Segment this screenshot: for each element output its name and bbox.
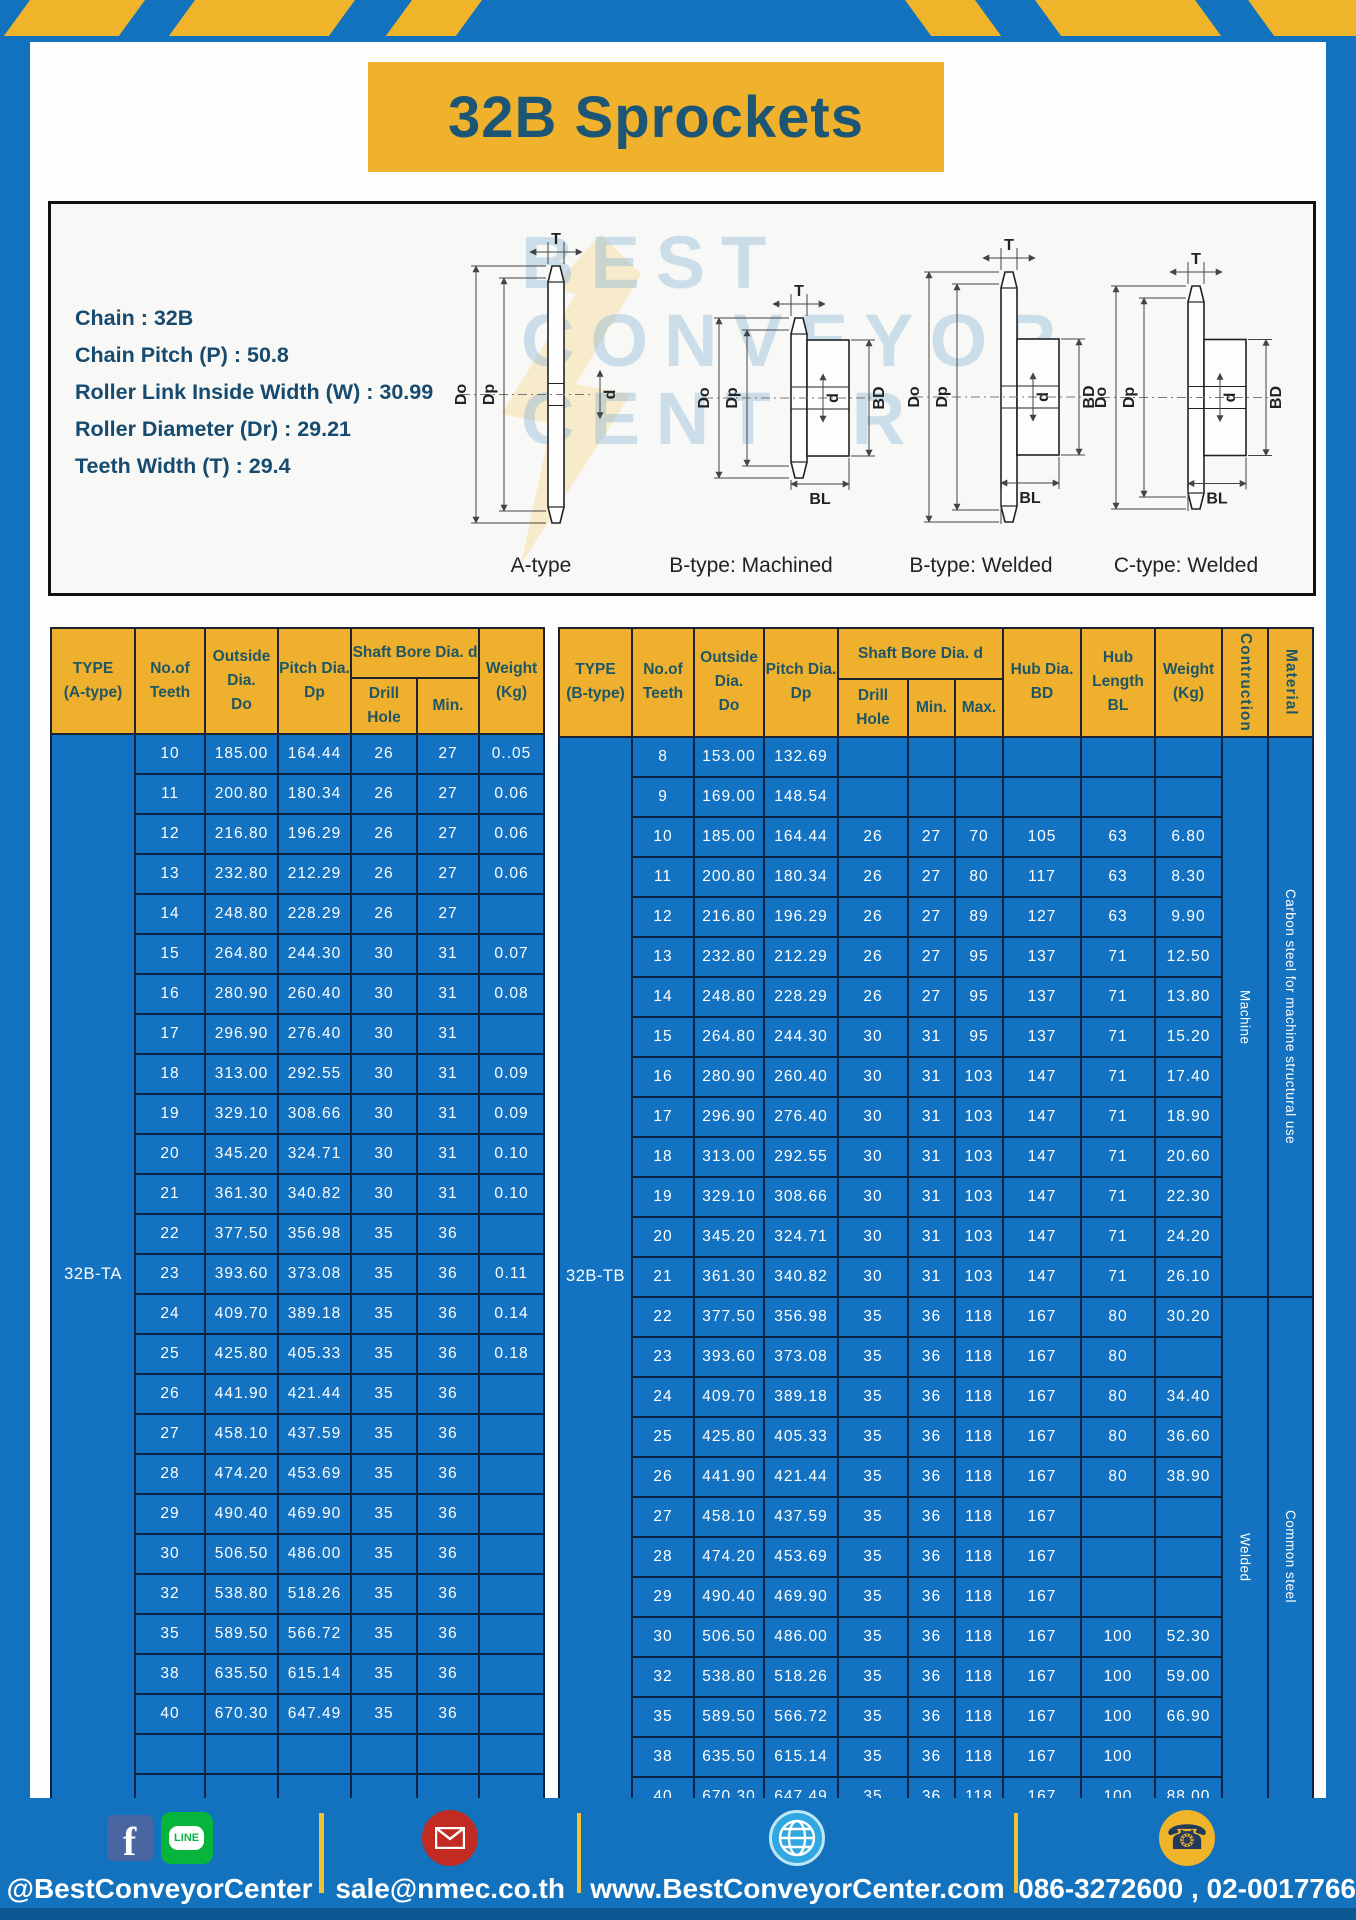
table-cell: 18 [632,1137,694,1177]
table-cell: 216.80 [205,814,278,854]
table-cell: 35 [838,1657,908,1697]
table-cell: 71 [1081,1177,1155,1217]
table-cell: 137 [1003,977,1081,1017]
table-cell: 30 [351,934,417,974]
footer-social-group: f LINE @BestConveyorCenter [0,1798,319,1908]
table-cell: 453.69 [764,1537,838,1577]
table-cell: 15 [632,1017,694,1057]
table-cell: 167 [1003,1297,1081,1337]
table-cell: 185.00 [694,817,764,857]
table-cell: 31 [908,1057,955,1097]
table-cell: 26.10 [1155,1257,1222,1297]
table-cell: 35 [351,1374,417,1414]
table-cell: 340.82 [278,1174,351,1214]
dimension-label: Do [906,386,923,408]
table-cell: 31 [908,1017,955,1057]
table-cell: 167 [1003,1577,1081,1617]
table-cell: 52.30 [1155,1617,1222,1657]
table-cell: 405.33 [278,1334,351,1374]
table-cell: 30 [838,1217,908,1257]
table-cell: 30 [351,1054,417,1094]
table-cell: 103 [955,1057,1003,1097]
table-cell: 24 [632,1377,694,1417]
table-cell: 244.30 [764,1017,838,1057]
table-cell: 458.10 [205,1414,278,1454]
table-cell: 26 [838,857,908,897]
table-cell: 118 [955,1577,1003,1617]
table-cell: 80 [1081,1337,1155,1377]
table-cell: 147 [1003,1097,1081,1137]
dimension-label: d [825,393,842,403]
table-cell: 36 [417,1414,479,1454]
table-cell: 19 [632,1177,694,1217]
table-cell: 31 [908,1177,955,1217]
table-cell: 35 [351,1454,417,1494]
table-cell: 421.44 [764,1457,838,1497]
table-cell: 264.80 [205,934,278,974]
stripe-decoration [1248,0,1356,36]
table-cell: 31 [908,1257,955,1297]
dimension-label: Do [696,387,713,409]
table-cell: 35 [351,1334,417,1374]
col-header-min: Min. [908,679,955,737]
table-cell: 232.80 [205,854,278,894]
sprocket-drawing: DoDpTdBDBL [696,283,888,508]
table-cell: 13 [632,937,694,977]
table-cell: 486.00 [278,1534,351,1574]
table-cell: 26 [838,817,908,857]
table-cell: 26 [351,894,417,934]
table-cell: 118 [955,1337,1003,1377]
table-cell: 137 [1003,1017,1081,1057]
spec-line: Chain : 32B [75,300,433,337]
table-cell: 0..05 [479,734,544,774]
table-cell: 0.10 [479,1174,544,1214]
table-cell [479,1214,544,1254]
table-cell: 118 [955,1697,1003,1737]
table-cell [479,1534,544,1574]
footer-social-handle[interactable]: @BestConveyorCenter [7,1873,313,1905]
col-header-shaft-bore: Shaft Bore Dia. d [351,628,479,678]
table-cell: 35 [351,1694,417,1734]
col-header-construction: Contruction [1222,628,1268,737]
table-cell: 100 [1081,1697,1155,1737]
table-cell: 324.71 [278,1134,351,1174]
table-cell [1155,1577,1222,1617]
table-cell: 36 [908,1497,955,1537]
table-cell: 35 [838,1457,908,1497]
dimension-label: d [1035,392,1052,402]
facebook-icon[interactable]: f [107,1815,153,1861]
table-cell: 35 [838,1417,908,1457]
table-cell: 118 [955,1377,1003,1417]
table-cell: 103 [955,1137,1003,1177]
table-cell [479,1454,544,1494]
table-cell: 490.40 [694,1577,764,1617]
table-cell: 30.20 [1155,1297,1222,1337]
table-cell: 10 [135,734,205,774]
col-header-teeth: No.of Teeth [632,628,694,737]
table-cell: 20 [632,1217,694,1257]
table-cell: 31 [417,1174,479,1214]
table-cell: 103 [955,1177,1003,1217]
table-cell: 35 [838,1737,908,1777]
table-cell: 167 [1003,1657,1081,1697]
table-cell: 100 [1081,1737,1155,1777]
table-cell: 308.66 [764,1177,838,1217]
line-icon[interactable]: LINE [161,1812,213,1864]
table-cell: 324.71 [764,1217,838,1257]
table-cell: 80 [955,857,1003,897]
table-cell: 441.90 [205,1374,278,1414]
table-cell [479,1374,544,1414]
table-cell: 28 [632,1537,694,1577]
table-cell: 27 [417,734,479,774]
table-cell: 292.55 [278,1054,351,1094]
table-cell: 29 [135,1494,205,1534]
table-cell: 36 [908,1737,955,1777]
table-cell: 36 [417,1494,479,1534]
table-cell: 36 [417,1294,479,1334]
table-cell: 36 [908,1657,955,1697]
table-cell: 12 [632,897,694,937]
col-header-max: Max. [955,679,1003,737]
table-cell: 566.72 [278,1614,351,1654]
table-cell: 506.50 [694,1617,764,1657]
table-cell: 437.59 [764,1497,838,1537]
table-cell: 280.90 [694,1057,764,1097]
dimension-label: Do [453,384,470,406]
table-cell: 248.80 [205,894,278,934]
table-cell: 0.09 [479,1094,544,1134]
table-cell: 35 [838,1537,908,1577]
table-cell: 26 [838,977,908,1017]
table-cell: 103 [955,1097,1003,1137]
table-cell: 469.90 [764,1577,838,1617]
table-cell: 147 [1003,1137,1081,1177]
globe-icon[interactable] [769,1810,825,1866]
table-cell: 29 [632,1577,694,1617]
table-cell: 518.26 [764,1657,838,1697]
chain-specs: Chain : 32B Chain Pitch (P) : 50.8 Rolle… [75,300,433,485]
col-header-drill-hole: Drill Hole [838,679,908,737]
table-cell: 340.82 [764,1257,838,1297]
footer-email[interactable]: sale@nmec.co.th [335,1873,565,1905]
table-cell: 105 [1003,817,1081,857]
table-cell [1155,1737,1222,1777]
table-cell: 0.06 [479,774,544,814]
table-cell: 30 [838,1097,908,1137]
footer: f LINE @BestConveyorCenter sale@nmec.co.… [0,1798,1356,1908]
table-cell: 35 [632,1697,694,1737]
table-cell: 71 [1081,1257,1155,1297]
table-cell: 538.80 [694,1657,764,1697]
table-cell: 24 [135,1294,205,1334]
table-cell: 27 [908,897,955,937]
table-cell: 212.29 [764,937,838,977]
table-cell: 296.90 [205,1014,278,1054]
table-cell: 35 [838,1697,908,1737]
table-cell: 36 [908,1337,955,1377]
table-cell: 118 [955,1417,1003,1457]
table-cell [479,1414,544,1454]
table-cell: 35 [838,1297,908,1337]
table-cell: 20 [135,1134,205,1174]
table-cell: 0.08 [479,974,544,1014]
table-cell [955,777,1003,817]
table-cell: 118 [955,1737,1003,1777]
table-cell: 35 [838,1337,908,1377]
dimension-label: d [602,390,619,400]
span-cell: Carbon steel for machine structural use [1268,737,1313,1297]
variant-label-a-type: A-type [511,554,572,578]
table-cell: 31 [417,1054,479,1094]
col-header-outside-dia: Outside Dia. Do [694,628,764,737]
table-cell: 26 [632,1457,694,1497]
table-cell: 20.60 [1155,1137,1222,1177]
sprocket-drawing: DoDpTd [453,231,619,523]
table-cell: 71 [1081,1017,1155,1057]
dimension-label: BL [1019,490,1041,507]
table-cell: 36 [908,1457,955,1497]
bottom-border [0,1908,1356,1920]
table-cell: 71 [1081,1057,1155,1097]
table-cell: 14 [135,894,205,934]
span-cell: Welded [1222,1297,1268,1817]
table-cell: 26 [351,734,417,774]
type-cell: 32B-TB [559,737,632,1817]
table-cell: 63 [1081,817,1155,857]
table-cell: 635.50 [694,1737,764,1777]
table-cell: 36 [417,1694,479,1734]
table-cell: 27 [135,1414,205,1454]
variant-label-c-welded: C-type: Welded [1114,554,1258,578]
table-cell: 31 [417,1134,479,1174]
table-cell: 393.60 [205,1254,278,1294]
stripe-decoration [169,0,355,36]
table-cell: 0.06 [479,814,544,854]
table-cell: 80 [1081,1457,1155,1497]
phone-icon[interactable]: ☎ [1159,1810,1215,1866]
table-cell [1081,737,1155,777]
table-cell: 118 [955,1657,1003,1697]
col-header-material: Material [1268,628,1313,737]
table-cell: 30 [838,1137,908,1177]
table-cell: 27 [908,817,955,857]
table-cell [135,1734,205,1774]
table-cell [479,1494,544,1534]
table-cell: 71 [1081,937,1155,977]
dimension-label: BL [1206,491,1228,508]
table-cell: 36 [417,1334,479,1374]
dimension-label: T [794,283,804,300]
table-cell: 30 [351,974,417,1014]
table-cell: 393.60 [694,1337,764,1377]
page-title: 32B Sprockets [448,84,864,151]
table-cell [479,1654,544,1694]
spec-line: Chain Pitch (P) : 50.8 [75,337,433,374]
table-cell: 147 [1003,1217,1081,1257]
table-cell: 212.29 [278,854,351,894]
footer-website[interactable]: www.BestConveyorCenter.com [590,1873,1004,1905]
table-cell: 26 [351,854,417,894]
table-cell [1003,737,1081,777]
dimension-label: T [1191,251,1201,268]
table-cell: 36 [417,1614,479,1654]
table-cell: 389.18 [278,1294,351,1334]
table-cell: 167 [1003,1537,1081,1577]
table-cell: 518.26 [278,1574,351,1614]
table-cell: 8.30 [1155,857,1222,897]
table-cell: 9 [632,777,694,817]
table-cell: 458.10 [694,1497,764,1537]
table-cell: 36 [908,1537,955,1577]
col-header-pitch-dia: Pitch Dia. Dp [764,628,838,737]
table-cell: 615.14 [278,1654,351,1694]
table-cell: 437.59 [278,1414,351,1454]
table-cell: 63 [1081,857,1155,897]
table-cell: 31 [417,934,479,974]
sprocket-drawing: DoDpTdBDBL [1093,251,1285,511]
dimension-label: T [551,231,561,248]
table-cell: 329.10 [694,1177,764,1217]
table-cell: 71 [1081,977,1155,1017]
dimension-label: Dp [1121,387,1138,409]
footer-phone-numbers[interactable]: 086-3272600 , 02-0017766 [1018,1873,1356,1905]
footer-website-group: www.BestConveyorCenter.com [581,1798,1014,1908]
table-cell: 425.80 [694,1417,764,1457]
variant-label-b-machined: B-type: Machined [669,554,832,578]
table-cell [838,777,908,817]
spec-line: Teeth Width (T) : 29.4 [75,448,433,485]
table-cell: 167 [1003,1417,1081,1457]
table-cell: 474.20 [694,1537,764,1577]
dimension-label: T [1004,237,1014,254]
col-header-min: Min. [417,678,479,734]
footer-email-group: sale@nmec.co.th [324,1798,577,1908]
table-cell: 27 [417,814,479,854]
table-cell: 27 [908,937,955,977]
table-cell: 132.69 [764,737,838,777]
table-cell [479,894,544,934]
stripe-decoration [1035,0,1221,36]
table-cell: 313.00 [694,1137,764,1177]
table-cell: 32 [632,1657,694,1697]
table-cell: 100 [1081,1617,1155,1657]
table-cell [278,1734,351,1774]
table-cell [908,777,955,817]
table-cell: 38 [632,1737,694,1777]
table-cell: 147 [1003,1057,1081,1097]
table-cell: 36 [908,1377,955,1417]
table-cell: 244.30 [278,934,351,974]
table-cell: 95 [955,1017,1003,1057]
table-cell: 35 [351,1294,417,1334]
col-header-drill-hole: Drill Hole [351,678,417,734]
table-cell: 35 [351,1654,417,1694]
table-cell: 421.44 [278,1374,351,1414]
table-cell: 27 [417,774,479,814]
table-cell: 27 [417,894,479,934]
table-cell: 11 [632,857,694,897]
table-cell: 264.80 [694,1017,764,1057]
table-cell: 35 [351,1574,417,1614]
table-cell: 35 [838,1577,908,1617]
col-header-hub-dia: Hub Dia. BD [1003,628,1081,737]
table-cell: 71 [1081,1217,1155,1257]
table-cell: 15.20 [1155,1017,1222,1057]
stripe-decoration [4,0,145,36]
table-cell: 389.18 [764,1377,838,1417]
table-cell: 10 [632,817,694,857]
table-cell: 280.90 [205,974,278,1014]
table-cell: 103 [955,1257,1003,1297]
table-cell: 27 [908,857,955,897]
table-cell: 196.29 [764,897,838,937]
table-cell: 26 [135,1374,205,1414]
table-cell: 6.80 [1155,817,1222,857]
table-cell: 0.18 [479,1334,544,1374]
table-cell [1003,777,1081,817]
table-cell: 31 [908,1137,955,1177]
table-cell: 16 [632,1057,694,1097]
table-cell [205,1734,278,1774]
table-cell: 34.40 [1155,1377,1222,1417]
table-cell: 30 [838,1177,908,1217]
table-cell: 11 [135,774,205,814]
email-icon[interactable] [422,1810,478,1866]
table-cell: 276.40 [764,1097,838,1137]
table-cell [1081,1577,1155,1617]
table-cell: 361.30 [694,1257,764,1297]
table-cell: 22 [135,1214,205,1254]
table-cell [417,1734,479,1774]
table-cell [1155,1497,1222,1537]
table-cell: 647.49 [278,1694,351,1734]
table-cell: 36 [908,1297,955,1337]
table-cell [479,1694,544,1734]
table-cell [1081,1537,1155,1577]
table-cell: 17 [135,1014,205,1054]
table-cell [479,1734,544,1774]
table-cell: 23 [135,1254,205,1294]
table-cell: 36 [908,1697,955,1737]
table-cell: 12.50 [1155,937,1222,977]
col-header-teeth: No.of Teeth [135,628,205,734]
table-cell: 26 [838,937,908,977]
dimension-label: Dp [724,387,741,409]
col-header-hub-length: Hub Length BL [1081,628,1155,737]
table-cell [1081,777,1155,817]
table-cell: 377.50 [205,1214,278,1254]
table-cell: 35 [351,1214,417,1254]
table-cell: 30 [838,1057,908,1097]
table-cell: 25 [632,1417,694,1457]
col-header-pitch-dia: Pitch Dia. Dp [278,628,351,734]
table-cell: 0.10 [479,1134,544,1174]
table-cell: 30 [351,1014,417,1054]
diagram-panel: BEST CONVEYOR CENTER Chain : 32B Chain P… [48,201,1316,596]
table-cell: 167 [1003,1337,1081,1377]
table-cell: 26 [838,897,908,937]
table-cell: 409.70 [694,1377,764,1417]
dimension-label: BL [809,491,831,508]
table-cell: 200.80 [694,857,764,897]
table-cell: 36 [417,1454,479,1494]
table-cell: 22 [632,1297,694,1337]
title-banner: 32B Sprockets [368,62,944,172]
col-header-type: TYPE (A-type) [51,628,135,734]
